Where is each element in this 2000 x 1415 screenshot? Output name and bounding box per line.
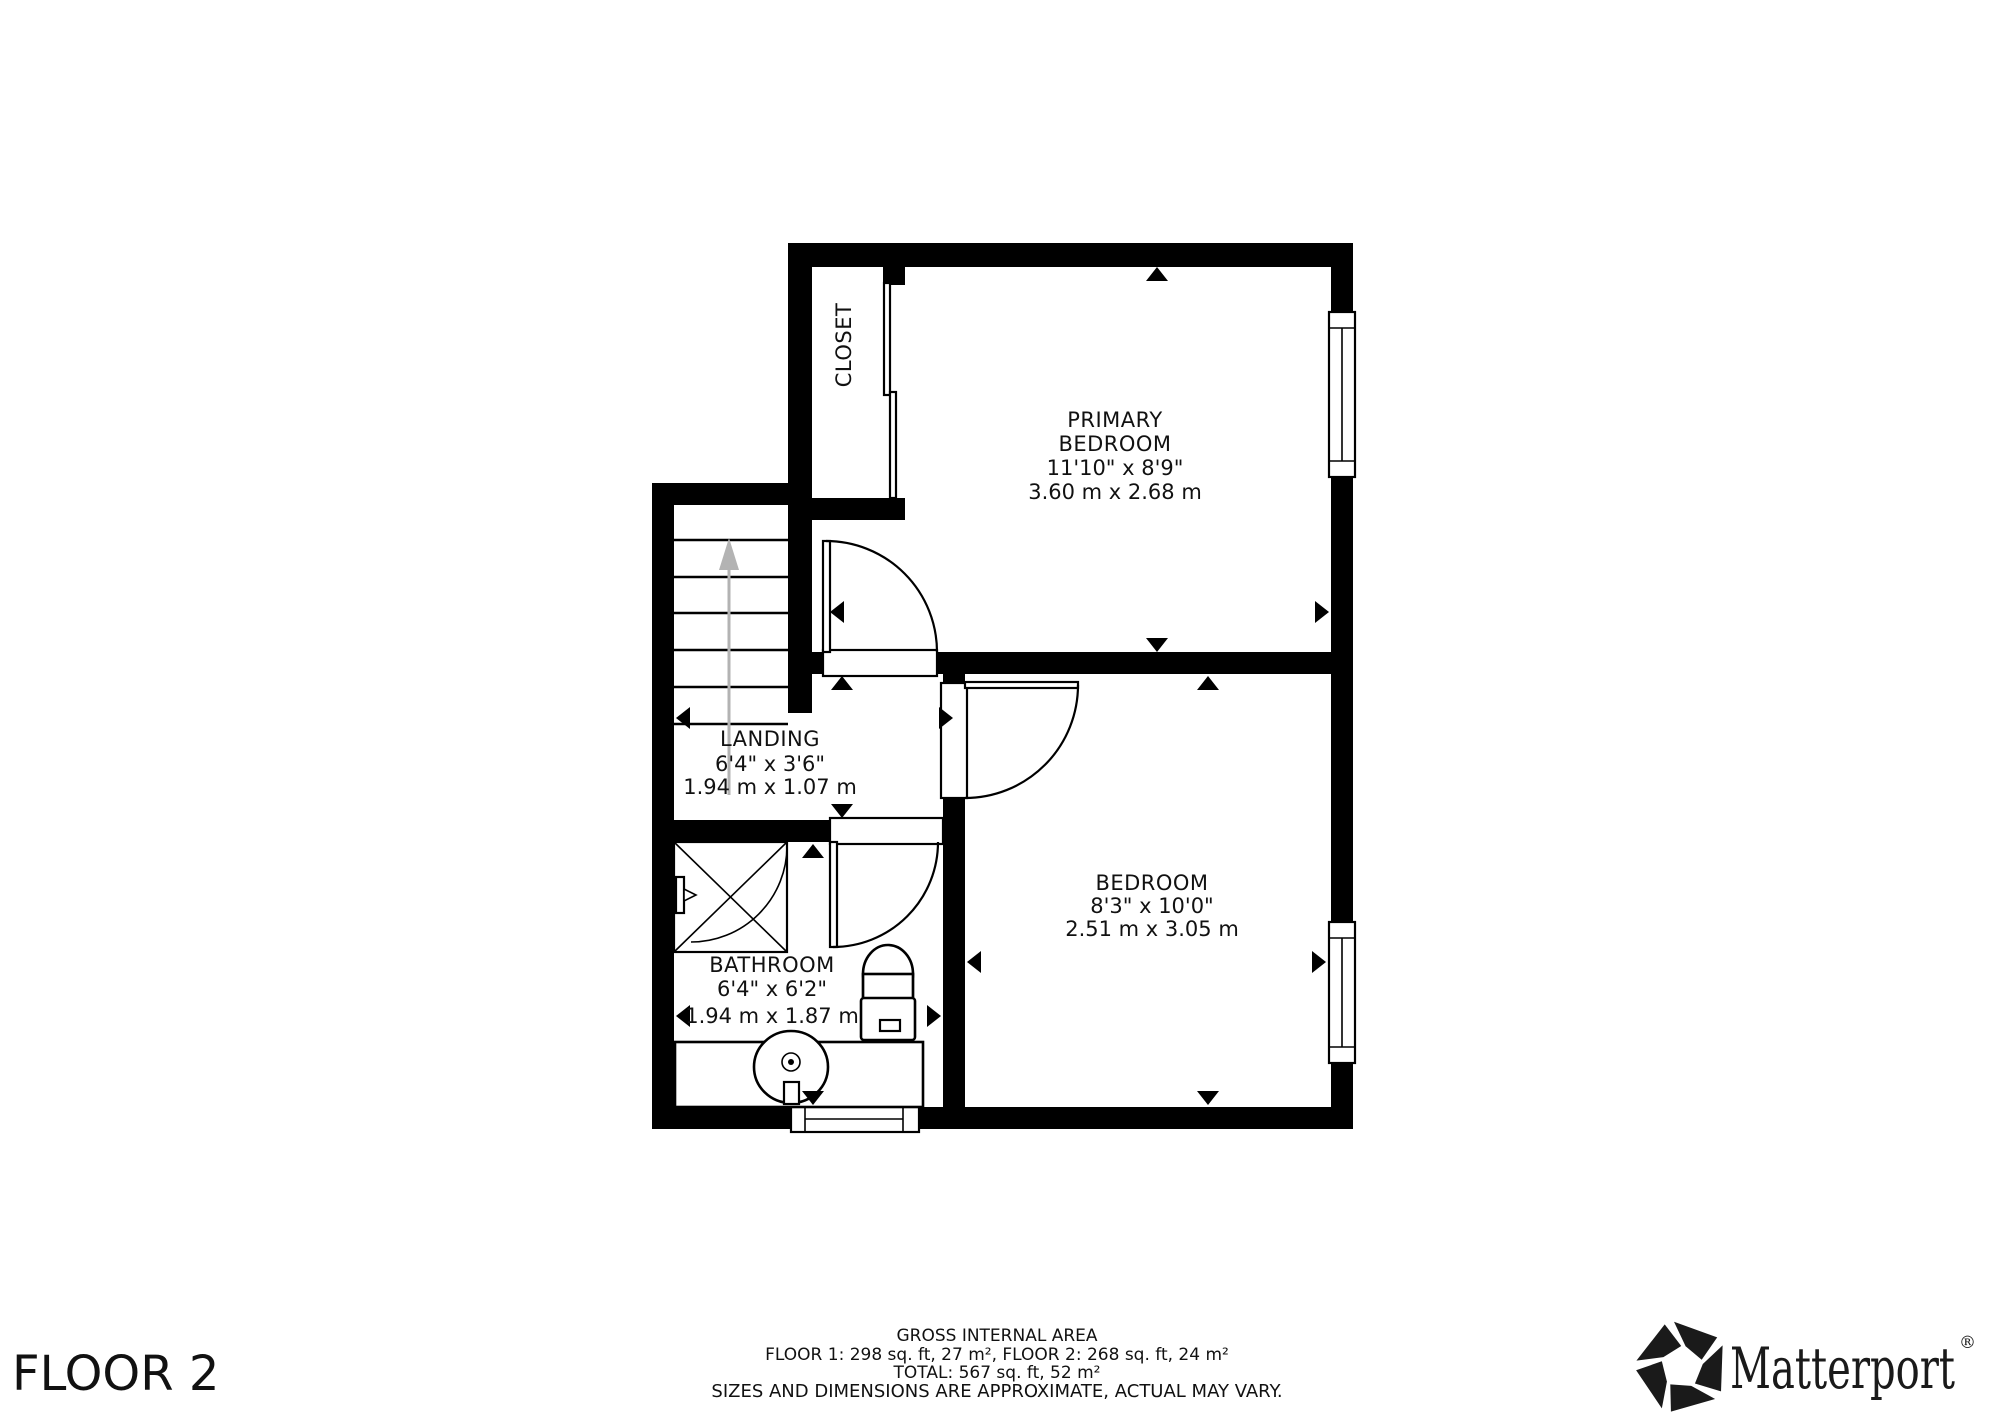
svg-text:BEDROOM: BEDROOM (1058, 432, 1171, 456)
svg-text:6'4" x 3'6": 6'4" x 3'6" (715, 752, 825, 776)
closet-sliding-door-icon (884, 283, 896, 498)
registered-trademark-icon: ® (1959, 1333, 1976, 1353)
bathroom-window-icon (791, 1105, 919, 1132)
bedroom-window-icon (1329, 922, 1355, 1063)
bathroom-door-icon (830, 818, 943, 947)
arrow-down-icon (1146, 638, 1168, 652)
arrow-right-icon (927, 1005, 941, 1027)
arrow-down-icon (831, 804, 853, 818)
bedroom-door-icon (941, 682, 1078, 798)
arrow-left-icon (967, 951, 981, 973)
svg-text:1.94 m x 1.87 m: 1.94 m x 1.87 m (685, 1004, 859, 1028)
arrow-up-icon (802, 844, 824, 858)
primary-bedroom-window-icon (1329, 312, 1355, 477)
arrow-up-icon (1197, 676, 1219, 690)
arrow-down-icon (1197, 1091, 1219, 1105)
bathroom-label: BATHROOM 6'4" x 6'2" 1.94 m x 1.87 m (685, 953, 859, 1028)
svg-text:11'10" x 8'9": 11'10" x 8'9" (1047, 456, 1184, 480)
arrow-left-icon (676, 707, 690, 729)
arrow-up-icon (1146, 267, 1168, 281)
gross-area-title: GROSS INTERNAL AREA (896, 1326, 1097, 1346)
shower-icon (674, 842, 787, 952)
arrow-left-icon (830, 601, 844, 623)
gross-area-total: TOTAL: 567 sq. ft, 52 m² (893, 1363, 1101, 1383)
landing-label: LANDING 6'4" x 3'6" 1.94 m x 1.07 m (683, 727, 857, 799)
toilet-icon (861, 945, 915, 1040)
matterport-pinwheel-icon (1627, 1320, 1736, 1415)
svg-text:BATHROOM: BATHROOM (709, 953, 835, 977)
matterport-logo: Matterport ® (1627, 1320, 1976, 1415)
sink-icon (675, 1031, 923, 1107)
primary-bedroom-label: PRIMARY BEDROOM 11'10" x 8'9" 3.60 m x 2… (1028, 408, 1202, 504)
svg-text:PRIMARY: PRIMARY (1067, 408, 1163, 432)
svg-text:1.94 m x 1.07 m: 1.94 m x 1.07 m (683, 775, 857, 799)
svg-text:6'4" x 6'2": 6'4" x 6'2" (717, 977, 827, 1001)
svg-text:3.60 m x 2.68 m: 3.60 m x 2.68 m (1028, 480, 1202, 504)
footer: GROSS INTERNAL AREA FLOOR 1: 298 sq. ft,… (711, 1326, 1282, 1402)
svg-text:BEDROOM: BEDROOM (1095, 871, 1208, 895)
matterport-wordmark: Matterport (1730, 1336, 1955, 1402)
arrow-right-icon (1312, 951, 1326, 973)
arrow-up-icon (831, 676, 853, 690)
gross-area-floors: FLOOR 1: 298 sq. ft, 27 m², FLOOR 2: 268… (765, 1345, 1229, 1365)
floor-plan: CLOSET PRIMARY BEDROOM 11'10" x 8'9" 3.6… (0, 0, 2000, 1415)
svg-text:8'3" x 10'0": 8'3" x 10'0" (1090, 894, 1213, 918)
floor-plan-page: CLOSET PRIMARY BEDROOM 11'10" x 8'9" 3.6… (0, 0, 2000, 1415)
svg-text:LANDING: LANDING (720, 727, 820, 751)
svg-text:2.51 m x 3.05 m: 2.51 m x 3.05 m (1065, 917, 1239, 941)
arrow-right-icon (1315, 601, 1329, 623)
closet-label: CLOSET (832, 303, 856, 388)
floor-label: FLOOR 2 (12, 1346, 219, 1402)
disclaimer: SIZES AND DIMENSIONS ARE APPROXIMATE, AC… (711, 1381, 1282, 1402)
bedroom-label: BEDROOM 8'3" x 10'0" 2.51 m x 3.05 m (1065, 871, 1239, 941)
